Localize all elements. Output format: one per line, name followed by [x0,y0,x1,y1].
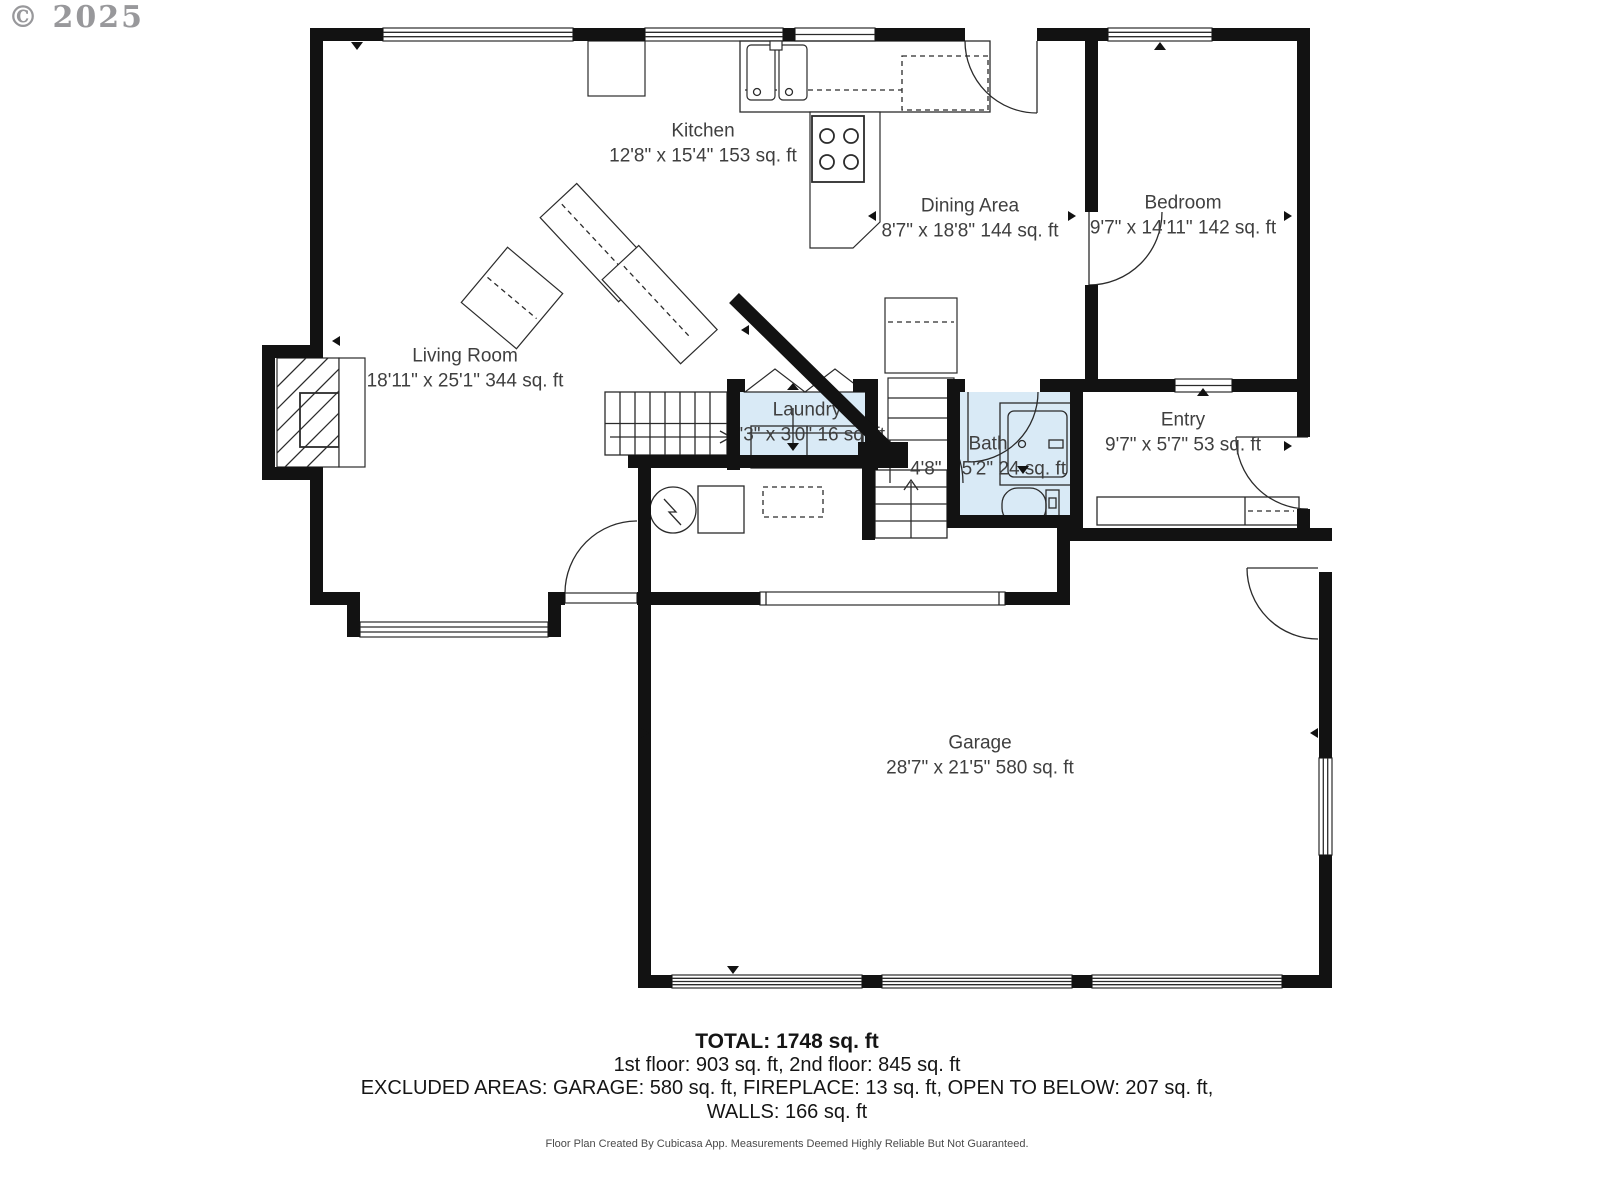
room-dims: 9'7" x 14'11" 142 sq. ft [1090,216,1276,241]
room-label-dining: Dining Area 8'7" x 18'8" 144 sq. ft [881,195,1058,244]
dining-exterior-door-icon [965,41,1037,113]
room-dims: 4'8" x 5'2" 24 sq. ft [910,457,1066,482]
room-name: Garage [886,732,1074,757]
kitchen-window-icon [645,28,783,41]
room-name: Kitchen [609,120,797,145]
garage-door-icons [672,975,1282,988]
laundry-bifold-door-icon [745,369,865,392]
room-dims: 18'11" x 25'1" 344 sq. ft [367,369,564,394]
open-to-below-strip-icon [1175,379,1232,392]
bedroom-window-icon [1108,28,1212,41]
dashed-appliance-icon [763,487,823,517]
kitchen-window2-icon [795,28,875,41]
angled-closet-icons [461,184,717,364]
entry-closet-icon [1097,497,1299,525]
cased-opening-icon [760,592,1005,605]
floor-plan-page: Kitchen 12'8" x 15'4" 153 sq. ft Dining … [0,0,1600,1200]
utility-box-icon [698,486,744,533]
water-heater-icon [650,487,696,533]
summary-excluded: EXCLUDED AREAS: GARAGE: 580 sq. ft, FIRE… [361,1077,1214,1101]
room-name: Laundry [729,399,885,424]
room-dims: 8'7" x 18'8" 144 sq. ft [881,219,1058,244]
floor-plan-fixtures-layer [0,0,1600,1200]
living-room-top-window-icon [383,28,573,41]
summary-walls: WALLS: 166 sq. ft [361,1101,1214,1125]
kitchen-counter-dashed-icon [902,56,988,110]
summary-total: TOTAL: 1748 sq. ft [361,1030,1214,1054]
bay-window-icon [360,622,548,637]
room-label-bath: Bath 4'8" x 5'2" 24 sq. ft [910,433,1066,482]
room-label-laundry: Laundry 5'3" x 3'0" 16 sq. ft [729,399,885,448]
room-dims: 28'7" x 21'5" 580 sq. ft [886,756,1074,781]
room-label-entry: Entry 9'7" x 5'7" 53 sq. ft [1105,409,1261,458]
room-label-living: Living Room 18'11" x 25'1" 344 sq. ft [367,345,564,394]
room-name: Entry [1105,409,1261,434]
living-room-south-door-icon [565,521,637,603]
garage-entry-door-icon [1247,568,1318,639]
main-staircase [605,392,731,455]
room-dims: 5'3" x 3'0" 16 sq. ft [729,423,885,448]
room-name: Living Room [367,345,564,370]
room-name: Bedroom [1090,192,1276,217]
disclaimer-text: Floor Plan Created By Cubicasa App. Meas… [545,1138,1028,1150]
kitchen-cabinet-icon [588,41,645,96]
room-label-bedroom: Bedroom 9'7" x 14'11" 142 sq. ft [1090,192,1276,241]
area-summary: TOTAL: 1748 sq. ft 1st floor: 903 sq. ft… [361,1030,1214,1124]
room-name: Bath [910,433,1066,458]
summary-floors: 1st floor: 903 sq. ft, 2nd floor: 845 sq… [361,1054,1214,1078]
kitchen-counter-icon [740,41,990,112]
kitchen-sink-icon [747,41,807,100]
room-label-kitchen: Kitchen 12'8" x 15'4" 153 sq. ft [609,120,797,169]
room-dims: 12'8" x 15'4" 153 sq. ft [609,144,797,169]
pantry-island-icons [885,298,957,440]
room-label-garage: Garage 28'7" x 21'5" 580 sq. ft [886,732,1074,781]
copyright-watermark: © 2025 [8,0,144,35]
room-name: Dining Area [881,195,1058,220]
room-dims: 9'7" x 5'7" 53 sq. ft [1105,433,1261,458]
garage-side-window-icon [1319,758,1332,855]
